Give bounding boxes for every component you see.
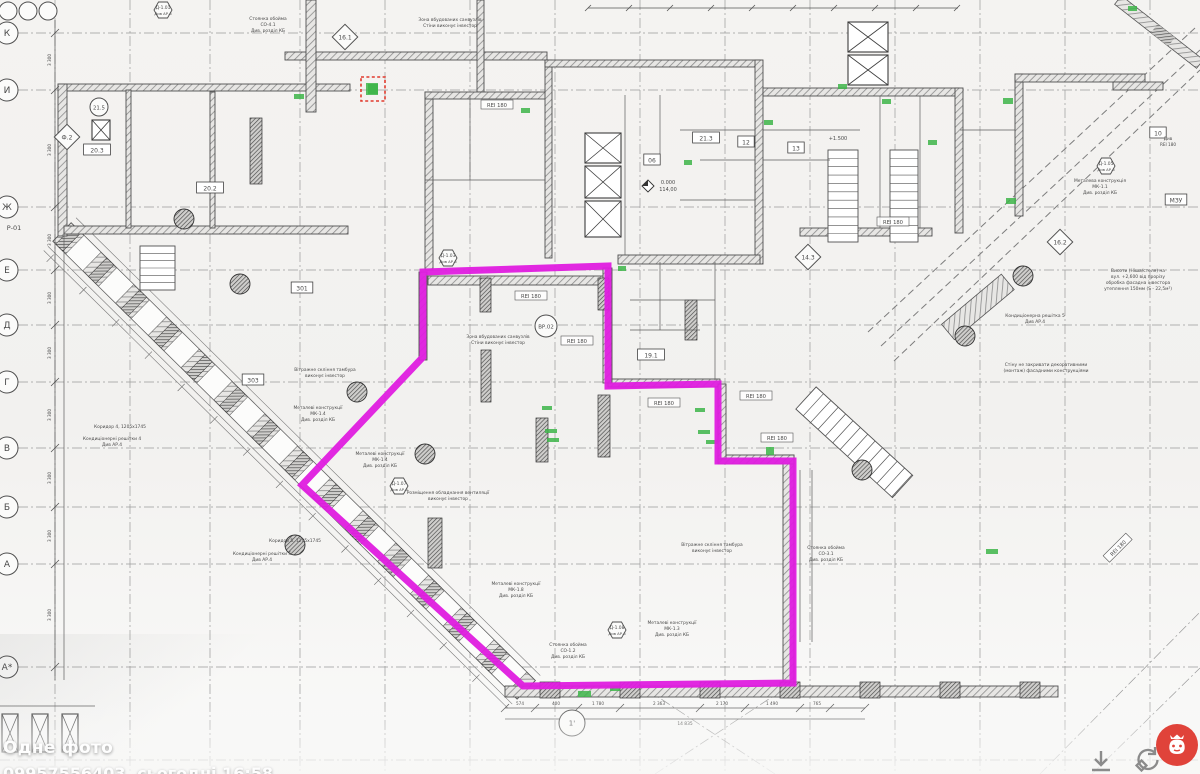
svg-text:765: 765	[813, 701, 821, 706]
photo-caption-title: Одне фото	[3, 738, 113, 758]
svg-text:Зона вбудованих санвузлів: Зона вбудованих санвузлів	[418, 16, 482, 23]
svg-text:Д: Д	[3, 321, 10, 331]
svg-text:МК-1.1: МК-1.1	[1092, 184, 1108, 190]
svg-text:Ф.2: Ф.2	[62, 135, 73, 142]
svg-text:Металеві конструкції: Металеві конструкції	[355, 451, 405, 457]
svg-text:Е: Е	[4, 266, 10, 276]
svg-text:И: И	[4, 86, 11, 96]
svg-text:20.3: 20.3	[90, 147, 104, 154]
svg-text:Див АР.6: Див АР.6	[608, 631, 626, 636]
svg-text:Вітражне скління тамбура: Вітражне скління тамбура	[294, 366, 356, 373]
svg-text:Див АР.6: Див АР.6	[439, 259, 457, 264]
svg-text:К: К	[4, 29, 11, 39]
download-button[interactable]	[1086, 748, 1116, 774]
svg-text:2 170: 2 170	[716, 701, 728, 706]
svg-text:REI 180: REI 180	[567, 339, 587, 345]
svg-text:МК-1.3: МК-1.3	[664, 626, 680, 632]
svg-text:REI 180: REI 180	[521, 294, 541, 300]
svg-text:МК-1.4: МК-1.4	[372, 457, 388, 463]
red-moneybag-icon	[1155, 723, 1199, 767]
svg-text:Стіни виконує інвестор: Стіни виконує інвестор	[423, 23, 477, 29]
svg-text:А*: А*	[2, 663, 13, 673]
svg-text:114,00: 114,00	[659, 187, 677, 193]
svg-text:3 300: 3 300	[47, 347, 52, 359]
svg-text:виконує інвестор: виконує інвестор	[428, 496, 468, 502]
svg-text:Коридор 4, 1205х1745: Коридор 4, 1205х1745	[94, 424, 146, 430]
svg-text:(монтаж) фасадними конструкція: (монтаж) фасадними конструкціями	[1004, 368, 1089, 374]
svg-text:1': 1'	[569, 720, 575, 728]
svg-text:Металева конструкція: Металева конструкція	[1074, 178, 1126, 184]
svg-text:МК-1.4: МК-1.4	[310, 411, 326, 417]
svg-text:Кондиціонерні решітки 5: Кондиціонерні решітки 5	[233, 551, 291, 557]
svg-text:Г: Г	[4, 378, 10, 388]
svg-text:REI 180: REI 180	[1160, 142, 1176, 147]
svg-text:2 363: 2 363	[653, 701, 665, 706]
svg-text:3 300: 3 300	[47, 292, 52, 304]
svg-text:А: А	[4, 560, 11, 570]
svg-text:Коридор 5, 1205х1745: Коридор 5, 1205х1745	[269, 538, 321, 544]
svg-text:3 300: 3 300	[47, 609, 52, 621]
svg-text:Див АР.4: Див АР.4	[252, 557, 272, 563]
svg-text:Див. розділ КБ: Див. розділ КБ	[551, 654, 585, 660]
download-icon	[1092, 751, 1110, 770]
svg-text:СО-1.2: СО-1.2	[560, 648, 575, 654]
svg-text:REI 180: REI 180	[883, 220, 903, 226]
svg-text:В: В	[4, 444, 10, 454]
svg-text:Стіну не закривати декоративни: Стіну не закривати декоративними	[1005, 362, 1088, 368]
svg-text:Див. розділ КБ: Див. розділ КБ	[251, 28, 285, 34]
svg-text:10: 10	[1154, 130, 1162, 137]
svg-text:утеплення 150мм (S - 22,5м²): утеплення 150мм (S - 22,5м²)	[1104, 286, 1172, 292]
svg-text:Див: Див	[1164, 136, 1173, 141]
svg-text:3 300: 3 300	[47, 530, 52, 542]
svg-text:19.1: 19.1	[644, 352, 658, 359]
svg-text:21.5: 21.5	[93, 106, 105, 112]
svg-text:1 780: 1 780	[592, 701, 604, 706]
svg-text:3 300: 3 300	[47, 54, 52, 66]
svg-text:Стоянка обойма: Стоянка обойма	[249, 15, 287, 22]
svg-text:REI 180: REI 180	[487, 103, 507, 109]
floor-plan-drawing: 3 3003 3003 3003 3003 3003 3003 3003 300…	[0, 0, 1200, 774]
floorplan-photo[interactable]: 3 3003 3003 3003 3003 3003 3003 3003 300…	[0, 0, 1200, 774]
svg-text:Стоянка обойма: Стоянка обойма	[549, 641, 587, 648]
svg-text:Металеві конструкції: Металеві конструкції	[647, 620, 697, 626]
svg-text:СО-4.1: СО-4.1	[260, 22, 275, 28]
svg-text:Див. розділ КБ: Див. розділ КБ	[809, 557, 843, 563]
svg-text:виконує інвестор: виконує інвестор	[692, 548, 732, 554]
svg-text:14.3: 14.3	[801, 255, 815, 262]
svg-text:14 835: 14 835	[677, 721, 693, 727]
svg-text:Див АР.6: Див АР.6	[154, 11, 172, 16]
svg-text:Ж: Ж	[2, 203, 12, 213]
svg-text:Р-01: Р-01	[7, 224, 22, 232]
svg-text:REI 180: REI 180	[767, 436, 787, 442]
svg-text:3 300: 3 300	[47, 409, 52, 421]
svg-text:Висоти (Ніша/стеля) на: Висоти (Ніша/стеля) на	[1111, 268, 1165, 274]
photo-caption-subtitle: 09957556403, сьогодні 16:58	[3, 764, 273, 774]
svg-text:400: 400	[552, 701, 560, 706]
svg-text:МЗУ: МЗУ	[1170, 197, 1183, 204]
svg-text:Див АР.6: Див АР.6	[390, 487, 408, 492]
svg-text:16.2: 16.2	[1053, 240, 1067, 247]
svg-text:303: 303	[247, 377, 259, 384]
app-badge-button[interactable]	[1155, 723, 1199, 767]
svg-text:Стіни виконує інвестор: Стіни виконує інвестор	[471, 340, 525, 346]
svg-text:Див АР.4: Див АР.4	[102, 442, 122, 448]
svg-text:Вітражне скління тамбура: Вітражне скління тамбура	[681, 541, 743, 548]
svg-text:Кондиціонерна решітка 5: Кондиціонерна решітка 5	[1005, 313, 1065, 319]
svg-text:Розміщення обладнання вентиляц: Розміщення обладнання вентиляції	[407, 489, 490, 496]
svg-text:Див. розділ КБ: Див. розділ КБ	[655, 632, 689, 638]
svg-text:СО-3.1: СО-3.1	[818, 551, 833, 557]
svg-text:Металеві конструкції: Металеві конструкції	[293, 405, 343, 411]
svg-text:Б: Б	[4, 503, 10, 513]
svg-text:1 490: 1 490	[766, 701, 778, 706]
svg-text:вул. +2,600 від прорізу: вул. +2,600 від прорізу	[1111, 274, 1165, 280]
svg-text:Див. розділ КБ: Див. розділ КБ	[1083, 190, 1117, 196]
svg-text:Див. розділ КБ: Див. розділ КБ	[363, 463, 397, 469]
svg-text:12: 12	[742, 139, 750, 146]
svg-text:Див. розділ КБ: Див. розділ КБ	[499, 593, 533, 599]
svg-text:REI 180: REI 180	[746, 394, 766, 400]
svg-text:3 300: 3 300	[47, 472, 52, 484]
svg-text:Зона вбудованих санвузлів: Зона вбудованих санвузлів	[466, 333, 530, 340]
svg-text:574: 574	[516, 701, 524, 706]
svg-text:3 300: 3 300	[47, 234, 52, 246]
svg-text:ВР.02: ВР.02	[538, 325, 554, 331]
svg-text:Стоянка обойма: Стоянка обойма	[807, 544, 845, 551]
svg-text:Металеві конструкції: Металеві конструкції	[491, 581, 541, 587]
svg-text:Див АР.6: Див АР.6	[1097, 167, 1115, 172]
svg-text:3 300: 3 300	[47, 144, 52, 156]
svg-text:Кондиціонерні решітки 4: Кондиціонерні решітки 4	[83, 436, 141, 442]
svg-text:0.000: 0.000	[661, 180, 675, 186]
svg-text:Див. розділ КБ: Див. розділ КБ	[301, 417, 335, 423]
svg-text:16.1: 16.1	[338, 35, 352, 42]
svg-text:21.3: 21.3	[699, 135, 713, 142]
svg-text:REI 180: REI 180	[654, 401, 674, 407]
svg-text:+1.500: +1.500	[829, 136, 848, 142]
svg-text:виконує інвестор: виконує інвестор	[305, 373, 345, 379]
svg-text:МК-1.8: МК-1.8	[508, 587, 524, 593]
svg-text:301: 301	[296, 285, 308, 292]
svg-text:20.2: 20.2	[203, 185, 217, 192]
svg-text:13: 13	[792, 145, 800, 152]
svg-text:Див АР.4: Див АР.4	[1025, 319, 1045, 325]
svg-text:обробка фасадна інвестора: обробка фасадна інвестора	[1106, 279, 1171, 286]
svg-text:06: 06	[648, 157, 656, 164]
